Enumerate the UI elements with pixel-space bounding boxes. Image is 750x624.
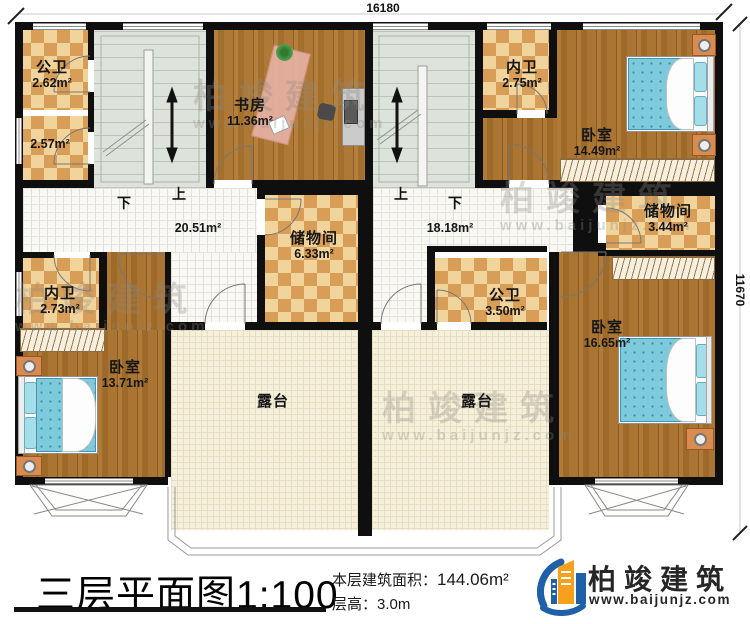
lamp-icon xyxy=(698,139,711,152)
company-logo-icon xyxy=(534,552,590,616)
door-gap xyxy=(381,322,421,330)
bed-headboard xyxy=(706,336,712,424)
room-name: 露台 xyxy=(461,394,493,411)
window xyxy=(123,23,203,30)
bed-bottomright xyxy=(618,336,712,424)
room-area: 3.50m² xyxy=(485,305,525,319)
floor-height-value: 3.0m xyxy=(377,596,410,613)
dimension-right: 11670 xyxy=(733,274,747,307)
wardrobe xyxy=(612,256,715,280)
study-monitor xyxy=(344,100,358,124)
room-area: 3.44m² xyxy=(644,221,692,235)
room-label-bedroom-bottomright: 卧室 16.65m² xyxy=(584,320,631,350)
room-storage-left xyxy=(265,195,358,330)
room-name: 书房 xyxy=(227,98,273,115)
lamp-icon xyxy=(698,39,711,52)
door-gap xyxy=(437,322,471,330)
room-label-hall-right: 18.18m² xyxy=(427,222,474,236)
room-name: 公卫 xyxy=(485,288,525,305)
bedroom-bottomleft-alcove xyxy=(107,252,165,330)
room-label-storage-left: 储物间 6.33m² xyxy=(290,231,338,261)
nightstand xyxy=(686,428,714,450)
window xyxy=(16,118,22,164)
hall-right-leg xyxy=(373,252,427,330)
stair-label-up-left: 上 xyxy=(172,184,186,204)
window xyxy=(373,23,428,30)
bed-pillow xyxy=(694,96,707,126)
room-area: 6.33m² xyxy=(290,248,338,262)
room-label-bedroom-bottomleft: 卧室 13.71m² xyxy=(102,360,149,390)
wall xyxy=(358,330,372,536)
stair-label-down-left: 下 xyxy=(117,193,131,213)
window xyxy=(45,478,133,484)
room-area: 2.75m² xyxy=(502,77,542,91)
room-label-bath-private-topright: 内卫 2.75m² xyxy=(502,60,542,90)
wall xyxy=(257,187,365,195)
room-name: 储物间 xyxy=(644,204,692,221)
bed-headboard xyxy=(707,56,714,132)
window xyxy=(487,23,551,30)
window xyxy=(33,23,86,30)
room-label-laundry-topleft: 2.57m² xyxy=(30,138,70,152)
wall xyxy=(427,246,547,252)
lamp-icon xyxy=(23,460,36,473)
wall xyxy=(15,180,94,188)
room-area: 2.62m² xyxy=(32,77,72,91)
room-label-terrace-left: 露台 xyxy=(257,394,289,411)
room-name: 储物间 xyxy=(290,231,338,248)
plan-info: 本层建筑面积：144.06m² 层高：3.0m xyxy=(332,567,509,617)
room-area: 11.36m² xyxy=(227,115,273,129)
door-gap xyxy=(517,110,545,118)
plant-icon xyxy=(276,44,293,61)
wall xyxy=(165,252,171,330)
bed-pillow xyxy=(694,62,707,92)
stairwell-right xyxy=(373,30,475,188)
dimension-top: 16180 xyxy=(366,1,399,15)
floor-height-label: 层高： xyxy=(332,596,377,613)
bed-duvet xyxy=(62,378,96,452)
door-gap xyxy=(205,322,245,330)
bed-duvet xyxy=(666,58,694,130)
room-area: 20.51m² xyxy=(175,222,222,236)
nightstand xyxy=(692,34,716,56)
lamp-icon xyxy=(694,433,707,446)
wall xyxy=(99,252,107,330)
room-name: 公卫 xyxy=(32,60,72,77)
door-gap xyxy=(88,60,94,92)
room-name: 内卫 xyxy=(502,60,542,77)
wall xyxy=(165,330,171,477)
wall xyxy=(715,22,723,485)
wardrobe xyxy=(560,158,715,182)
room-label-hall-left: 20.51m² xyxy=(175,222,222,236)
wall xyxy=(549,30,557,118)
wall xyxy=(206,30,214,188)
room-area: 2.57m² xyxy=(30,138,70,152)
study-chair xyxy=(317,102,337,121)
wall xyxy=(88,30,94,188)
room-terrace-right xyxy=(372,330,549,530)
window xyxy=(595,478,678,484)
stairwell-left xyxy=(94,30,206,188)
wall xyxy=(598,188,715,196)
door-gap xyxy=(598,205,606,243)
floor-area-value: 144.06m² xyxy=(437,570,509,589)
stair-label-up-right: 上 xyxy=(394,184,408,204)
wall xyxy=(427,252,435,330)
window xyxy=(583,23,700,30)
wall xyxy=(358,187,373,330)
room-label-bath-private-bottomleft: 内卫 2.73m² xyxy=(40,286,80,316)
nightstand xyxy=(16,456,42,476)
room-area: 14.49m² xyxy=(574,145,621,159)
room-label-bedroom-topright: 卧室 14.49m² xyxy=(574,128,621,158)
bed-topright xyxy=(626,56,714,132)
floor-area-line: 本层建筑面积：144.06m² xyxy=(332,567,509,593)
stair-label-down-right: 下 xyxy=(448,193,462,213)
nightstand xyxy=(16,356,42,376)
hall-left xyxy=(23,188,265,252)
wardrobe xyxy=(20,328,105,352)
room-area: 16.65m² xyxy=(584,337,631,351)
room-name: 内卫 xyxy=(40,286,80,303)
lamp-icon xyxy=(23,360,36,373)
room-name: 卧室 xyxy=(574,128,621,145)
door-gap xyxy=(509,180,549,188)
door-gap xyxy=(54,252,90,258)
room-label-bath-public-topleft: 公卫 2.62m² xyxy=(32,60,72,90)
window xyxy=(16,272,22,316)
wall xyxy=(365,30,373,188)
company-website: www.baijunjz.com xyxy=(589,592,731,607)
room-name: 卧室 xyxy=(102,360,149,377)
floor-area-label: 本层建筑面积： xyxy=(332,572,437,589)
wall xyxy=(475,118,483,188)
room-name: 露台 xyxy=(257,394,289,411)
door-gap xyxy=(88,132,94,164)
bed-duvet xyxy=(666,338,696,422)
nightstand xyxy=(692,134,716,156)
floor-height-line: 层高：3.0m xyxy=(332,593,509,616)
room-area: 18.18m² xyxy=(427,222,474,236)
room-terrace-left xyxy=(171,330,358,530)
wall xyxy=(549,252,559,477)
floorplan-page: 柏竣建筑 www.baijunjz.com 柏竣建筑 www.baijunjz.… xyxy=(0,0,750,624)
title-underline xyxy=(14,607,326,612)
room-name: 卧室 xyxy=(584,320,631,337)
hall-left-leg xyxy=(171,252,257,330)
room-area: 13.71m² xyxy=(102,377,149,391)
room-bath-laundry-topleft xyxy=(18,116,88,188)
bedroom-topright-entry xyxy=(483,118,557,188)
wall xyxy=(475,30,483,118)
bed-bottomleft xyxy=(18,376,98,454)
room-area: 2.73m² xyxy=(40,303,80,317)
room-label-terrace-right: 露台 xyxy=(461,394,493,411)
room-label-bath-public-bottomright: 公卫 3.50m² xyxy=(485,288,525,318)
door-gap xyxy=(257,199,265,235)
room-label-study: 书房 11.36m² xyxy=(227,98,273,128)
door-gap xyxy=(214,180,252,188)
room-label-storage-right: 储物间 3.44m² xyxy=(644,204,692,234)
